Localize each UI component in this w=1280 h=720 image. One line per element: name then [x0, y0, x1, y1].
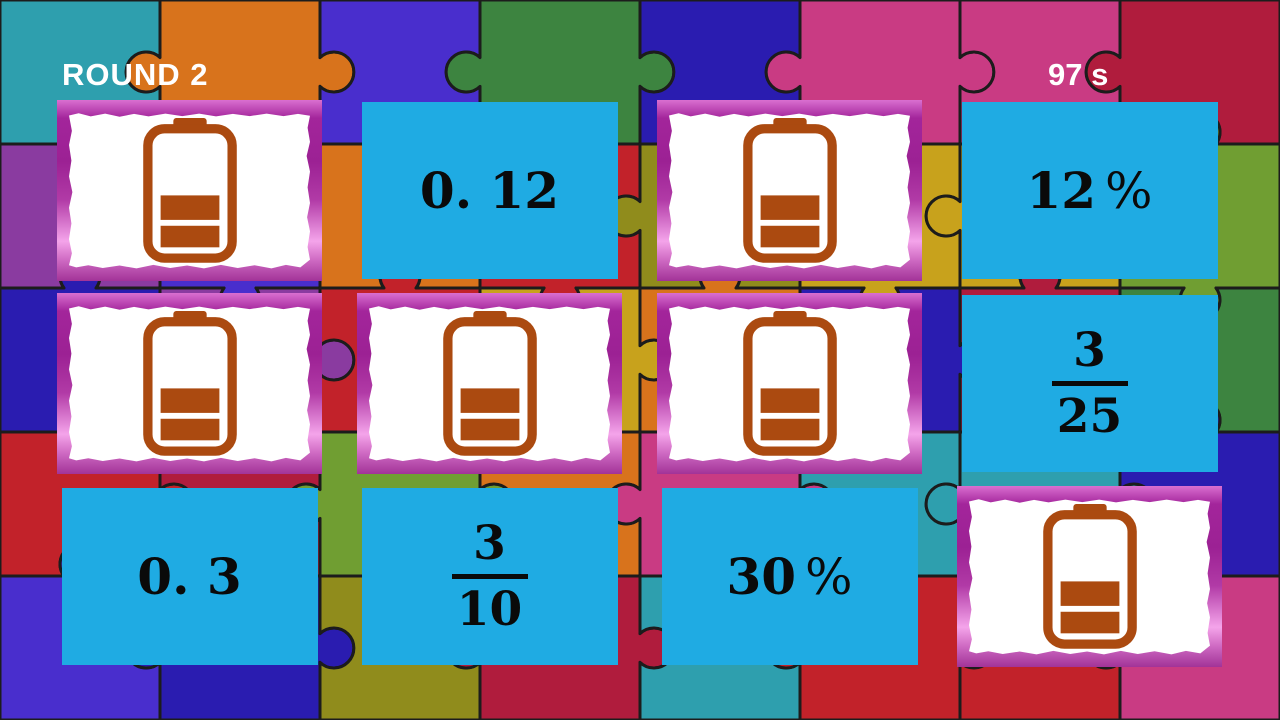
percent-number: 30	[726, 547, 796, 606]
card-value: 12%	[1026, 161, 1152, 220]
card-r1c3-face-down[interactable]	[657, 100, 922, 281]
card-back-paper	[669, 112, 910, 269]
fraction-numerator: 3	[1073, 327, 1106, 374]
fraction-bar	[1052, 381, 1128, 386]
card-value: 0. 12	[420, 161, 559, 220]
card-r2c1-face-down[interactable]	[57, 293, 322, 474]
round-label: ROUND 2	[62, 57, 209, 93]
percent-sign: %	[805, 548, 853, 606]
card-r3c3-percent[interactable]: 30%	[662, 488, 918, 665]
fraction-denominator: 10	[457, 586, 522, 633]
card-r1c1-face-down[interactable]	[57, 100, 322, 281]
battery-icon	[741, 311, 839, 456]
fraction: 3 25	[1052, 327, 1128, 440]
card-grid: 0. 12 12% 3 25 0. 3 3	[57, 100, 1222, 667]
card-r3c1-decimal[interactable]: 0. 3	[62, 488, 318, 665]
card-value: 0. 3	[137, 547, 241, 606]
card-back-paper	[969, 498, 1210, 655]
card-r1c2-decimal[interactable]: 0. 12	[362, 102, 618, 279]
card-r2c3-face-down[interactable]	[657, 293, 922, 474]
battery-icon	[141, 311, 239, 456]
card-r2c2-face-down[interactable]	[357, 293, 622, 474]
card-value: 30%	[726, 547, 852, 606]
card-r3c2-fraction[interactable]: 3 10	[362, 488, 618, 665]
fraction: 3 10	[452, 520, 528, 633]
card-r2c4-fraction[interactable]: 3 25	[962, 295, 1218, 472]
card-back-paper	[69, 305, 310, 462]
fraction-bar	[452, 574, 528, 579]
card-r3c4-face-down[interactable]	[957, 486, 1222, 667]
percent-number: 12	[1026, 161, 1096, 220]
card-back-paper	[369, 305, 610, 462]
battery-icon	[741, 118, 839, 263]
card-r1c4-percent[interactable]: 12%	[962, 102, 1218, 279]
percent-sign: %	[1105, 162, 1153, 220]
battery-icon	[141, 118, 239, 263]
battery-icon	[441, 311, 539, 456]
card-back-paper	[69, 112, 310, 269]
card-back-paper	[669, 305, 910, 462]
battery-icon	[1041, 504, 1139, 649]
fraction-numerator: 3	[473, 520, 506, 567]
fraction-denominator: 25	[1057, 393, 1122, 440]
timer-label: 97 s	[1048, 57, 1108, 93]
